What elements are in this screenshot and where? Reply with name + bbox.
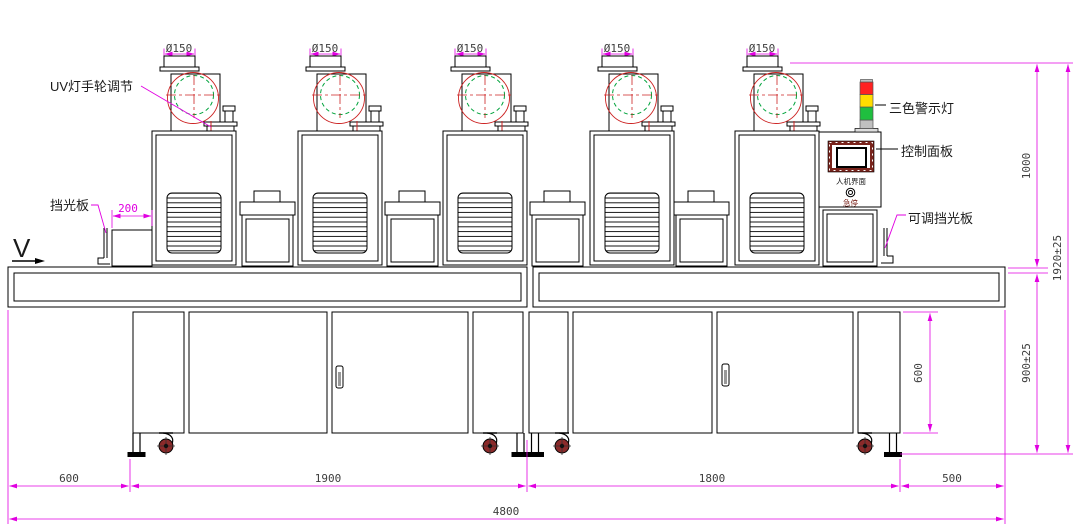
- adjustable-shield-plate: [881, 228, 893, 263]
- uv-unit-3: [443, 42, 528, 265]
- cabinet-panel: [529, 312, 568, 433]
- adjustable-shield-label: 可调挡光板: [908, 211, 973, 226]
- shield-box: [112, 230, 152, 266]
- hmi-screen[interactable]: [837, 148, 866, 167]
- hmi-label: 人机界面: [836, 176, 866, 186]
- cabinet-panel: [133, 312, 184, 433]
- light-green-segment: [860, 107, 873, 120]
- cabinet-door: [189, 312, 327, 433]
- conveyor-table: [8, 267, 1005, 307]
- legs-and-casters: [128, 433, 903, 457]
- leveling-leg: [128, 433, 146, 457]
- light-top-cap: [861, 80, 873, 83]
- cabinet-door: [332, 312, 468, 433]
- leveling-leg: [526, 433, 544, 457]
- warning-light-tower: [855, 80, 878, 133]
- leveling-leg: [884, 433, 902, 457]
- dim1800-text: 1800: [699, 472, 726, 485]
- door-handle-grip: [338, 372, 341, 386]
- cabinet-right: [529, 312, 900, 433]
- inlet-shield: [98, 228, 152, 266]
- dim200-text: 200: [118, 202, 138, 215]
- uv-unit-4: [590, 42, 675, 265]
- uv-curing-line-drawing: Ø150: [0, 0, 1075, 528]
- spacer-box-2: [385, 191, 440, 266]
- light-base-plate: [855, 129, 878, 133]
- door-handle-grip: [724, 370, 727, 384]
- control-lower-box: [823, 210, 877, 266]
- spacer-box-3: [530, 191, 585, 266]
- spacer-box-1: [240, 191, 295, 266]
- shield-plate: [98, 228, 110, 264]
- cabinet-door: [717, 312, 853, 433]
- engineering-drawing-canvas: Ø150: [0, 0, 1075, 528]
- uv-unit-1: [152, 42, 237, 265]
- direction-arrow-head: [35, 258, 45, 264]
- dim1000-text: 1000: [1020, 153, 1033, 180]
- caster-wheel: [157, 433, 175, 455]
- cabinet-door: [573, 312, 712, 433]
- tricolor-light-label: 三色警示灯: [889, 101, 954, 116]
- dim600v-text: 600: [912, 363, 925, 383]
- light-yellow-segment: [860, 95, 873, 108]
- dim900-text: 900±25: [1020, 343, 1033, 383]
- dim4800-text: 4800: [493, 505, 520, 518]
- dim500-text: 500: [942, 472, 962, 485]
- estop-label: 急停: [843, 198, 858, 208]
- direction-label: V: [13, 233, 31, 263]
- shield-label: 挡光板: [50, 198, 89, 213]
- control-panel-label: 控制面板: [901, 144, 953, 159]
- dim1920-text: 1920±25: [1051, 235, 1064, 281]
- light-base: [860, 120, 873, 129]
- caster-wheel: [481, 433, 499, 455]
- caster-wheel: [856, 433, 874, 455]
- cabinet-left: [133, 312, 523, 433]
- dim1900-text: 1900: [315, 472, 342, 485]
- adjustable-shield-leader: [885, 215, 906, 248]
- uv-unit-2: [298, 42, 383, 265]
- uv-handwheel-label: UV灯手轮调节: [50, 79, 133, 94]
- dim600-text: 600: [59, 472, 79, 485]
- control-cabinet: 人机界面 急停: [819, 132, 881, 266]
- uv-unit-5: [735, 42, 820, 265]
- caster-wheel: [553, 433, 571, 455]
- light-red-segment: [860, 82, 873, 95]
- spacer-box-4: [674, 191, 729, 266]
- cabinet-panel: [858, 312, 900, 433]
- cabinet-panel: [473, 312, 523, 433]
